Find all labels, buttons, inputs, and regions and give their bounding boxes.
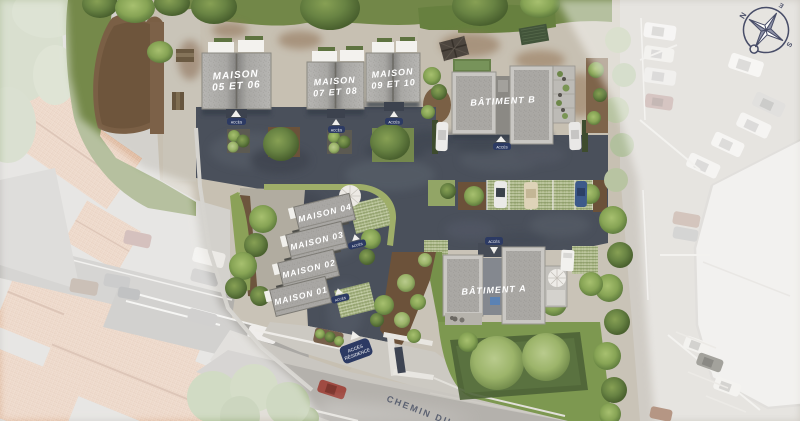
svg-text:ACCÈS: ACCÈS bbox=[331, 127, 343, 132]
svg-text:ACCÈS: ACCÈS bbox=[488, 239, 500, 244]
svg-text:ACCÈS: ACCÈS bbox=[231, 119, 243, 124]
svg-text:ACCÈS: ACCÈS bbox=[496, 144, 508, 149]
svg-text:ACCÈS: ACCÈS bbox=[388, 119, 400, 124]
